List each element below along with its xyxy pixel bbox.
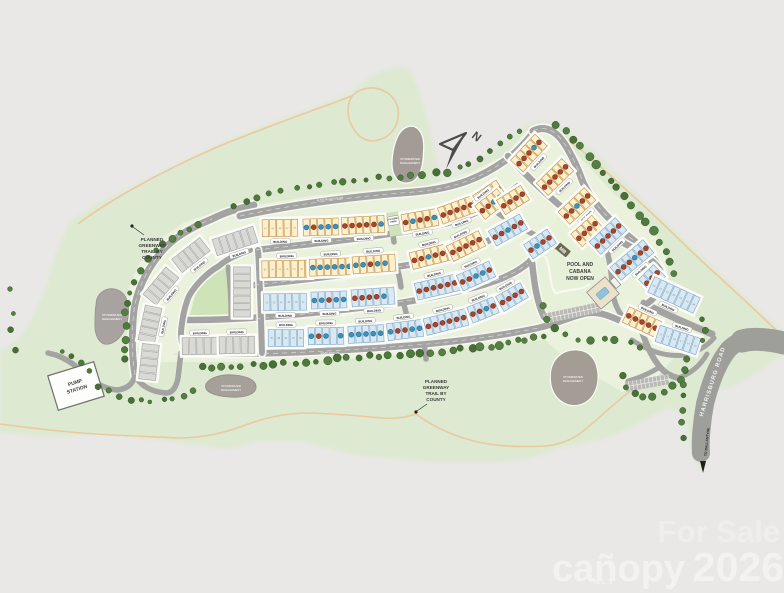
svg-text:NOW OPEN: NOW OPEN	[566, 276, 594, 282]
svg-text:POOL AND: POOL AND	[567, 262, 594, 268]
svg-text:BUILDING: BUILDING	[273, 240, 288, 244]
svg-text:COUNTY: COUNTY	[142, 255, 163, 260]
svg-text:BUILDING: BUILDING	[323, 252, 338, 257]
svg-text:CABANA: CABANA	[569, 269, 591, 275]
svg-text:MANAGEMENT: MANAGEMENT	[400, 161, 420, 165]
svg-text:2026: 2026	[693, 544, 784, 590]
svg-text:M L S: M L S	[594, 579, 613, 586]
svg-text:BUILDING: BUILDING	[358, 319, 373, 324]
svg-text:GREENWAY: GREENWAY	[139, 243, 167, 248]
svg-text:MANAGEMENT: MANAGEMENT	[221, 388, 241, 392]
svg-text:PLANNED: PLANNED	[141, 237, 164, 242]
svg-text:BUILDING: BUILDING	[314, 239, 329, 244]
svg-text:BUILDING: BUILDING	[319, 321, 334, 325]
svg-text:MANAGEMENT: MANAGEMENT	[102, 317, 122, 321]
svg-text:TRAIL BY: TRAIL BY	[141, 249, 163, 254]
svg-text:PLANNED: PLANNED	[425, 379, 448, 384]
svg-text:TRAIL BY: TRAIL BY	[425, 391, 446, 396]
svg-text:BUILDING: BUILDING	[193, 331, 208, 335]
svg-text:GREENWAY: GREENWAY	[423, 385, 449, 390]
svg-text:BIMELECH LN: BIMELECH LN	[321, 351, 340, 356]
svg-text:COUNTY: COUNTY	[426, 397, 445, 402]
svg-text:BUILDING: BUILDING	[278, 314, 293, 318]
svg-text:MANAGEMENT: MANAGEMENT	[563, 379, 583, 383]
svg-text:BUILDING: BUILDING	[230, 330, 245, 334]
svg-text:BUILDING: BUILDING	[279, 323, 294, 327]
svg-text:BUILDING: BUILDING	[357, 236, 372, 241]
svg-text:cañopy: cañopy	[552, 548, 685, 590]
svg-text:BUILDING: BUILDING	[280, 254, 295, 258]
